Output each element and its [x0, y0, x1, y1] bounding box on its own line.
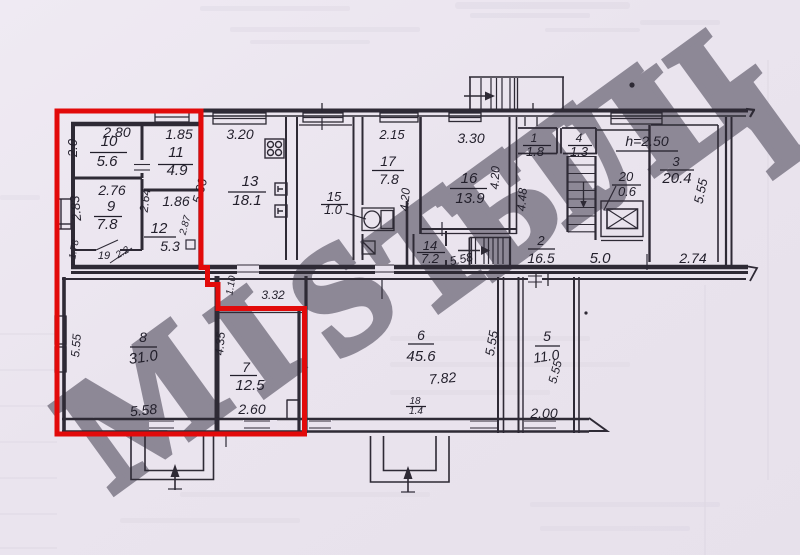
- svg-text:1.86: 1.86: [162, 193, 189, 209]
- svg-text:8: 8: [139, 329, 147, 345]
- svg-text:4: 4: [576, 131, 583, 145]
- svg-text:45.6: 45.6: [406, 348, 436, 365]
- svg-text:16.5: 16.5: [527, 250, 554, 266]
- svg-text:13: 13: [242, 173, 259, 190]
- svg-text:7: 7: [242, 359, 251, 375]
- svg-text:4.35: 4.35: [212, 331, 228, 356]
- svg-text:16: 16: [461, 170, 478, 187]
- svg-text:7.82: 7.82: [428, 369, 457, 387]
- svg-text:18.1: 18.1: [232, 192, 261, 209]
- svg-text:13.9: 13.9: [455, 190, 485, 207]
- svg-text:2.74: 2.74: [678, 250, 706, 266]
- svg-text:7.8: 7.8: [97, 216, 119, 233]
- svg-text:19: 19: [98, 250, 110, 262]
- svg-text:1.85: 1.85: [165, 126, 192, 142]
- svg-text:1.0: 1.0: [324, 202, 343, 217]
- svg-text:4.20: 4.20: [397, 187, 413, 212]
- svg-text:5.3: 5.3: [160, 238, 180, 254]
- svg-text:5.55: 5.55: [68, 333, 84, 358]
- svg-text:5.58: 5.58: [129, 401, 158, 420]
- svg-text:2.0: 2.0: [65, 138, 80, 158]
- svg-text:20.4: 20.4: [661, 170, 691, 187]
- svg-text:11: 11: [168, 144, 184, 161]
- svg-text:3.20: 3.20: [226, 126, 253, 142]
- svg-text:10: 10: [101, 133, 118, 150]
- svg-text:12.5: 12.5: [235, 377, 265, 394]
- svg-text:1.8: 1.8: [526, 144, 545, 159]
- svg-text:2.00: 2.00: [529, 405, 557, 421]
- svg-text:h=2.50: h=2.50: [625, 133, 668, 149]
- svg-text:2.76: 2.76: [97, 182, 125, 198]
- svg-text:7.2: 7.2: [421, 251, 440, 266]
- svg-text:5.0: 5.0: [590, 250, 612, 267]
- svg-text:4.20: 4.20: [487, 165, 502, 189]
- svg-text:2.60: 2.60: [237, 401, 265, 417]
- svg-text:2.15: 2.15: [378, 127, 405, 142]
- svg-text:3.32: 3.32: [261, 288, 285, 302]
- svg-text:5.6: 5.6: [97, 153, 119, 170]
- svg-text:20: 20: [618, 169, 634, 184]
- svg-text:2.83: 2.83: [67, 194, 84, 222]
- svg-text:1.4: 1.4: [409, 406, 423, 417]
- svg-text:7.8: 7.8: [379, 171, 399, 187]
- svg-text:1.3: 1.3: [570, 144, 589, 159]
- svg-text:9: 9: [107, 198, 116, 215]
- svg-text:3.30: 3.30: [457, 130, 484, 146]
- svg-text:6: 6: [417, 327, 425, 343]
- svg-text:2: 2: [536, 233, 545, 248]
- svg-text:17: 17: [380, 153, 397, 169]
- svg-text:1: 1: [531, 131, 538, 145]
- svg-text:0.6: 0.6: [618, 184, 637, 199]
- svg-text:4.48: 4.48: [514, 187, 530, 212]
- svg-text:2.64: 2.64: [137, 188, 154, 214]
- svg-text:4.9: 4.9: [167, 162, 189, 179]
- svg-text:3: 3: [672, 154, 680, 169]
- svg-text:5: 5: [543, 328, 551, 344]
- svg-text:12: 12: [151, 220, 168, 237]
